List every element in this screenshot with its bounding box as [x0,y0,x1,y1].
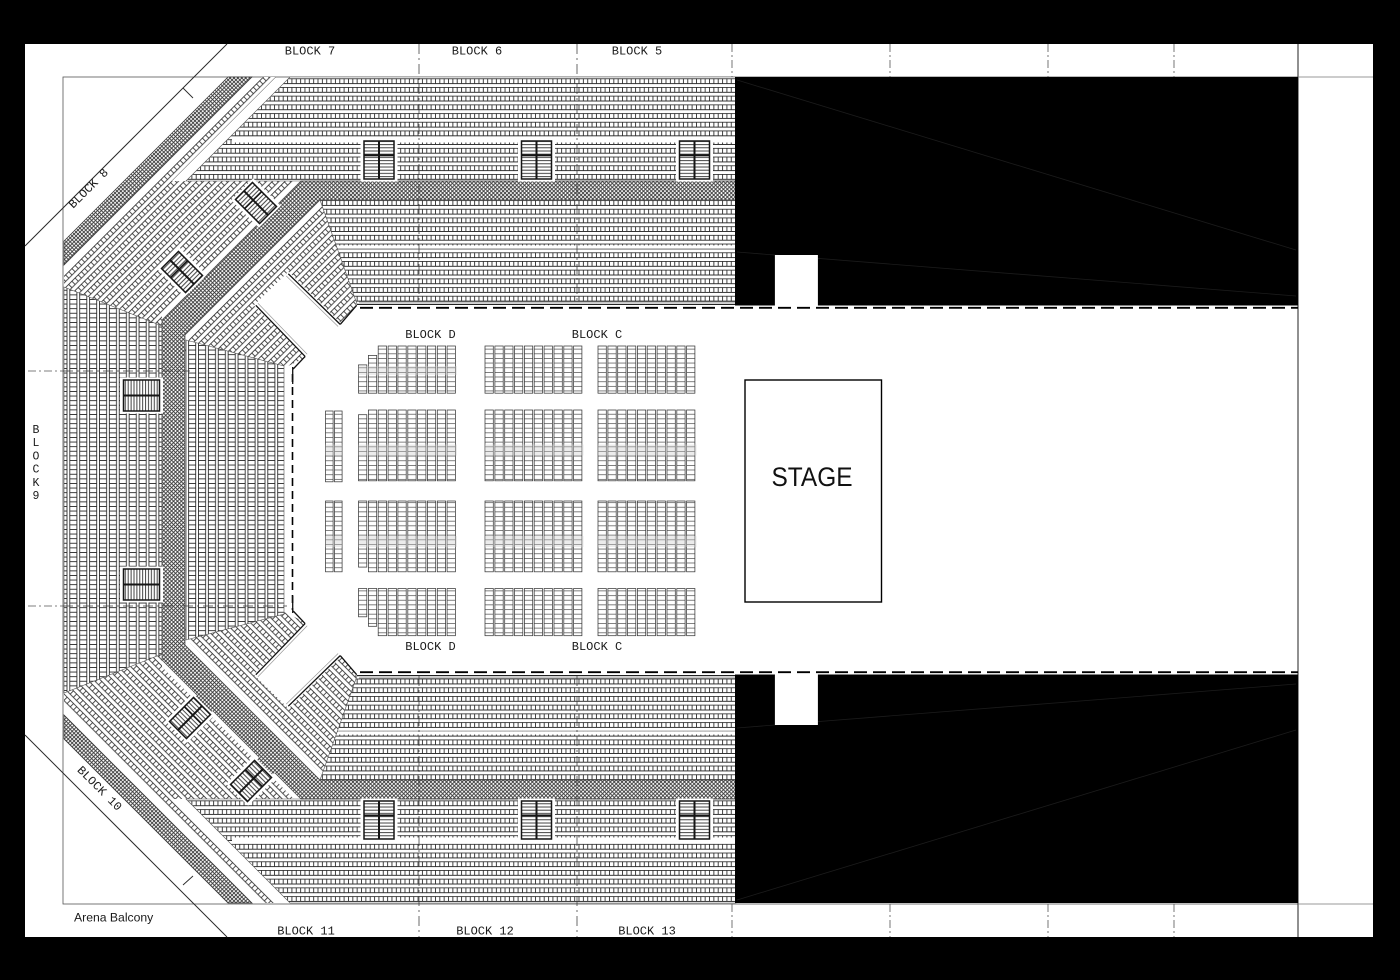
svg-text:BLOCK 11: BLOCK 11 [277,925,335,939]
svg-text:K: K [33,477,40,490]
svg-text:9: 9 [33,490,40,503]
svg-text:BLOCK C: BLOCK C [572,328,622,342]
svg-text:C: C [33,464,40,477]
svg-text:B: B [33,424,40,437]
svg-text:BLOCK 12: BLOCK 12 [456,925,514,939]
svg-text:BLOCK 6: BLOCK 6 [452,45,502,59]
svg-text:BLOCK D: BLOCK D [405,640,455,654]
svg-text:STAGE: STAGE [772,462,853,492]
svg-text:Arena Balcony: Arena Balcony [74,911,154,925]
svg-text:O: O [33,450,40,463]
svg-text:BLOCK D: BLOCK D [405,328,455,342]
svg-text:BLOCK C: BLOCK C [572,640,622,654]
svg-text:BLOCK 5: BLOCK 5 [612,45,662,59]
svg-text:BLOCK 13: BLOCK 13 [618,925,676,939]
svg-text:BLOCK 7: BLOCK 7 [285,45,335,59]
svg-text:L: L [33,437,40,450]
